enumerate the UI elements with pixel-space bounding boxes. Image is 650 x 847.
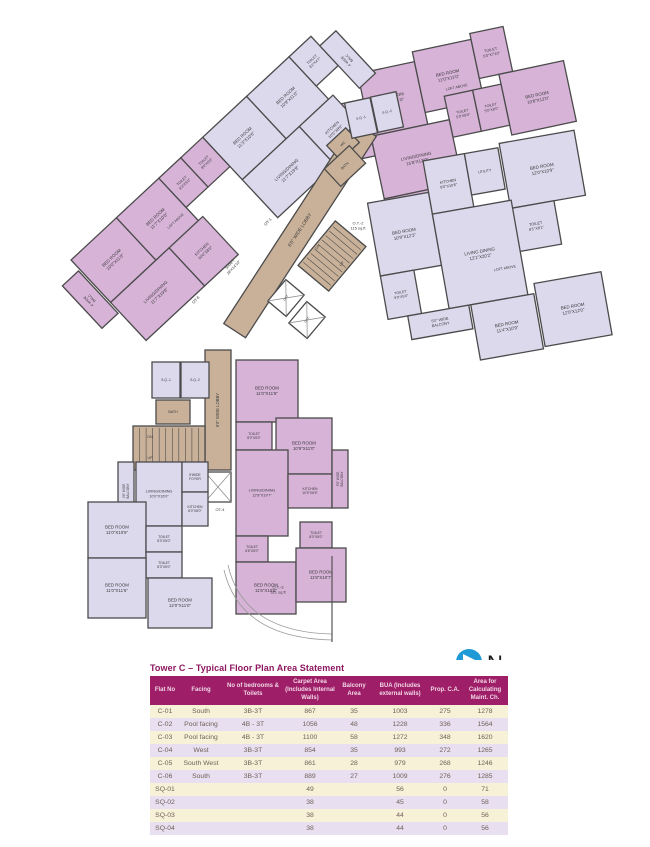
wing-diag: 4' WIDEBALCBED ROOM10'0"X11'0"BED ROOM11… [54, 21, 403, 357]
table-cell: 38 [284, 809, 336, 822]
table-cell: 889 [284, 770, 336, 783]
table-cell: 1246 [462, 757, 508, 770]
table-cell: 56 [462, 822, 508, 835]
table-cell: C-04 [150, 744, 180, 757]
table-row: C-03Pool facing4B - 3T11005812723481620 [150, 731, 508, 744]
room-label: 6'6"X5'0" [245, 549, 259, 553]
table-cell: 38 [284, 796, 336, 809]
table-cell: 71 [462, 783, 508, 796]
table-cell: C-06 [150, 770, 180, 783]
table-cell: 1265 [462, 744, 508, 757]
table-cell: 979 [372, 757, 428, 770]
table-cell: C-02 [150, 718, 180, 731]
table-cell: 0 [428, 822, 462, 835]
room-label: 11'0"X11'6" [106, 588, 128, 593]
table-cell: 1003 [372, 705, 428, 718]
table-cell: 1285 [462, 770, 508, 783]
table-cell: 3B-3T [222, 757, 284, 770]
table-row: C-05South West3B-3T861289792681246 [150, 757, 508, 770]
table-cell: 4B - 3T [222, 731, 284, 744]
room-label: BED ROOM [255, 385, 279, 390]
room-label: LIVING/DINING [146, 490, 173, 494]
table-cell: 275 [428, 705, 462, 718]
room-label: OT-4 [216, 507, 226, 512]
table-cell [222, 783, 284, 796]
table-cell [180, 796, 222, 809]
table-cell [180, 783, 222, 796]
room-label: 8'0"X5'0" [247, 436, 261, 440]
table-cell: 1620 [462, 731, 508, 744]
column-header: Area for Calculating Maint. Ch. [462, 676, 508, 705]
table-cell [336, 822, 372, 835]
table-cell: 268 [428, 757, 462, 770]
table-cell: 4B - 3T [222, 718, 284, 731]
room-label: BED ROOM [168, 597, 192, 602]
column-header: Balcony Area [336, 676, 372, 705]
table-cell: 27 [336, 770, 372, 783]
room-label: BED ROOM [292, 440, 316, 445]
table-cell: 58 [462, 796, 508, 809]
table-cell: Pool facing [180, 731, 222, 744]
column-header: No of bedrooms & Toilets [222, 676, 284, 705]
room-label: 10'9"X6'5" [302, 491, 318, 495]
room-label: 6'0" WIDE LOBBY [215, 393, 220, 427]
table-cell: 1100 [284, 731, 336, 744]
table-cell: 44 [372, 822, 428, 835]
table-cell: 56 [462, 809, 508, 822]
room-label: 10'9"X11'0" [293, 446, 315, 451]
table-cell: South West [180, 757, 222, 770]
room-label: OT-1 [263, 216, 273, 226]
table-cell: 336 [428, 718, 462, 731]
table-cell: 56 [372, 783, 428, 796]
table-cell: SQ-01 [150, 783, 180, 796]
room-label: 11'0"X11'9" [256, 391, 278, 396]
room-label: 8'3"X5'0" [157, 539, 171, 543]
room-label: FOYER [189, 477, 201, 481]
table-cell: 45 [372, 796, 428, 809]
room-label: BATH [168, 410, 178, 414]
table-cell [222, 809, 284, 822]
room-label: 8'3"X5'0" [157, 565, 171, 569]
table-cell: 1564 [462, 718, 508, 731]
table-row: C-02Pool facing4B - 3T10564812283361564 [150, 718, 508, 731]
table-cell: West [180, 744, 222, 757]
table-cell: C-01 [150, 705, 180, 718]
room-label: 321 sq.ft [270, 590, 286, 595]
room-label: 10'0"X16'0" [149, 494, 169, 498]
table-cell: 854 [284, 744, 336, 757]
table-cell: 1228 [372, 718, 428, 731]
table-row: SQ-033844056 [150, 809, 508, 822]
room-label: 8'0"X8'0" [188, 509, 202, 513]
table-row: C-04West3B-3T854359932721265 [150, 744, 508, 757]
table-cell: SQ-04 [150, 822, 180, 835]
table-cell [222, 822, 284, 835]
table-cell: 272 [428, 744, 462, 757]
room-label: S.Q.-1 [161, 378, 171, 382]
room-label: 8'0"X5'0" [309, 535, 323, 539]
table-cell: 38 [284, 822, 336, 835]
compass: N [456, 649, 503, 660]
table-cell: 993 [372, 744, 428, 757]
table-cell [336, 796, 372, 809]
table-cell: 861 [284, 757, 336, 770]
table-row: C-06South3B-3T8892710092761285 [150, 770, 508, 783]
table-row: SQ-043844056 [150, 822, 508, 835]
table-cell: SQ-03 [150, 809, 180, 822]
table-cell: 276 [428, 770, 462, 783]
table-row: SQ-014956071 [150, 783, 508, 796]
table-cell: 44 [372, 809, 428, 822]
room-label: 12'8"X19'7" [252, 493, 272, 497]
table-cell: C-03 [150, 731, 180, 744]
table-cell: 0 [428, 796, 462, 809]
room-label: 12'0"X11'0" [169, 603, 191, 608]
table-cell: South [180, 770, 222, 783]
column-header: BUA (Includes external walls) [372, 676, 428, 705]
table-cell: 1278 [462, 705, 508, 718]
table-cell: 3B-3T [222, 770, 284, 783]
table-cell: 48 [336, 718, 372, 731]
column-header: Facing [180, 676, 222, 705]
area-statement-table: Flat NoFacingNo of bedrooms & ToiletsCar… [150, 676, 508, 835]
table-cell: Pool facing [180, 718, 222, 731]
table-cell: 348 [428, 731, 462, 744]
column-header: Prop. C.A. [428, 676, 462, 705]
table-cell: 28 [336, 757, 372, 770]
compass-north-label: N [487, 651, 503, 660]
room-label: BED ROOM [105, 524, 129, 529]
room-label: DN [147, 435, 153, 439]
table-cell: South [180, 705, 222, 718]
table-cell: 35 [336, 705, 372, 718]
table-cell: 0 [428, 809, 462, 822]
table-row: SQ-023845058 [150, 796, 508, 809]
table-cell [180, 822, 222, 835]
table-cell: C-05 [150, 757, 180, 770]
room-label: BALCONY [340, 471, 344, 487]
table-row: C-01South3B-3T8673510032751278 [150, 705, 508, 718]
floor-plan: 4' WIDEBALCBED ROOM10'0"X11'0"BED ROOM11… [0, 0, 650, 660]
room-label: 11'0"X10'6" [106, 530, 128, 535]
column-header: Flat No [150, 676, 180, 705]
room-label: BALCONY [126, 483, 130, 499]
table-cell: 35 [336, 744, 372, 757]
room-label: 11'8"X10'7" [310, 575, 332, 580]
table-cell [336, 809, 372, 822]
room-label: LIVING/DINING [249, 489, 276, 493]
room-label: 115 sq.ft [350, 226, 366, 231]
room-label: BED ROOM [105, 582, 129, 587]
table-cell [336, 783, 372, 796]
table-cell: SQ-02 [150, 796, 180, 809]
column-header: Carpet Area (Includes Internal Walls) [284, 676, 336, 705]
table-cell [180, 809, 222, 822]
table-cell: 3B-3T [222, 744, 284, 757]
room-label: BED ROOM [309, 569, 333, 574]
table-cell: 49 [284, 783, 336, 796]
table-cell: 58 [336, 731, 372, 744]
table-cell [222, 796, 284, 809]
table-cell: 1056 [284, 718, 336, 731]
area-statement-title: Tower C – Typical Floor Plan Area Statem… [150, 663, 508, 673]
room-label: S.Q.-2 [190, 378, 200, 382]
room-label: UP [148, 456, 154, 460]
table-cell: 1009 [372, 770, 428, 783]
floor-plan-root: 4' WIDEBALCBED ROOM10'0"X11'0"BED ROOM11… [54, 16, 613, 642]
table-cell: 1272 [372, 731, 428, 744]
table-cell: 867 [284, 705, 336, 718]
table-cell: 0 [428, 783, 462, 796]
table-cell: 3B-3T [222, 705, 284, 718]
area-statement-section: Tower C – Typical Floor Plan Area Statem… [150, 663, 508, 835]
